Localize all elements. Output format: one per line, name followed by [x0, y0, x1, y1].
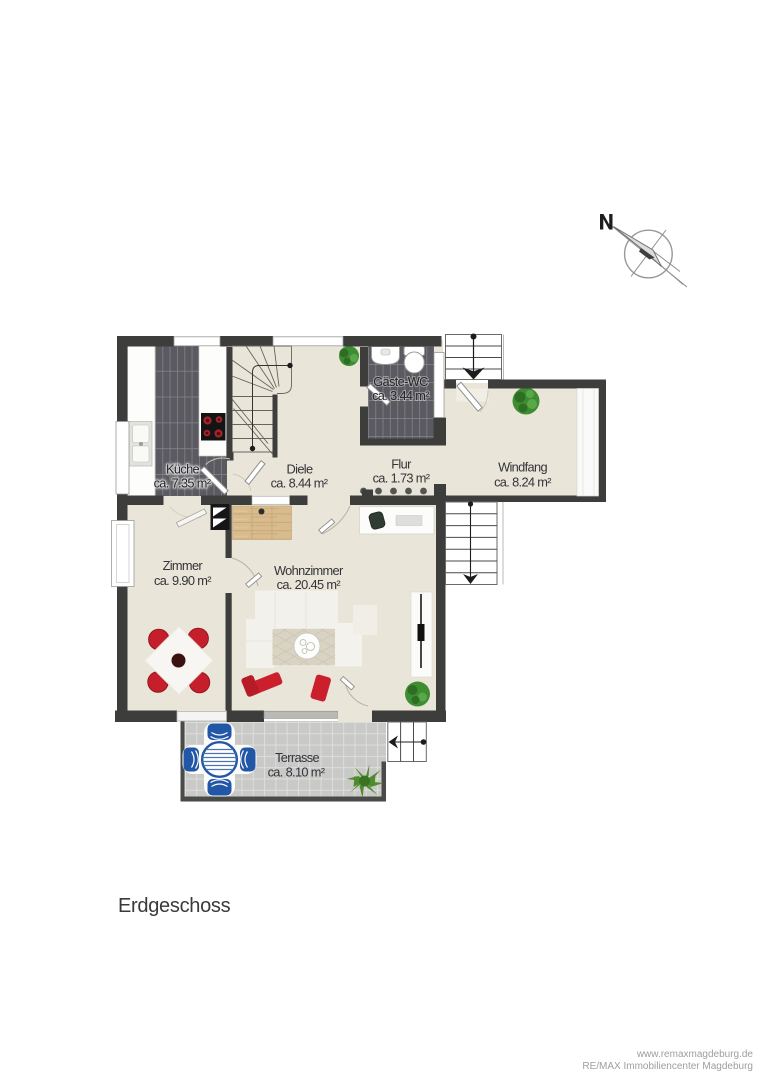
svg-text:Zimmer: Zimmer: [163, 558, 204, 573]
svg-text:ca. 20.45 m²: ca. 20.45 m²: [277, 577, 342, 592]
svg-text:Küche: Küche: [166, 462, 200, 477]
svg-text:ca. 8.24 m²: ca. 8.24 m²: [494, 475, 552, 490]
svg-text:ca. 7.35 m²: ca. 7.35 m²: [154, 476, 212, 491]
svg-text:Wohnzimmer: Wohnzimmer: [274, 563, 344, 578]
svg-text:Diele: Diele: [287, 462, 313, 477]
svg-text:ca. 8.10 m²: ca. 8.10 m²: [268, 765, 326, 780]
svg-text:ca. 9.90 m²: ca. 9.90 m²: [154, 573, 212, 588]
svg-text:ca. 3.44 m²: ca. 3.44 m²: [372, 388, 430, 403]
svg-text:ca. 8.44 m²: ca. 8.44 m²: [271, 476, 329, 491]
svg-text:Windfang: Windfang: [498, 460, 547, 475]
svg-text:Flur: Flur: [391, 457, 412, 472]
svg-text:Terrasse: Terrasse: [275, 750, 319, 765]
svg-text:ca. 1.73 m²: ca. 1.73 m²: [373, 471, 431, 486]
svg-text:Gäste-WC: Gäste-WC: [373, 374, 428, 389]
